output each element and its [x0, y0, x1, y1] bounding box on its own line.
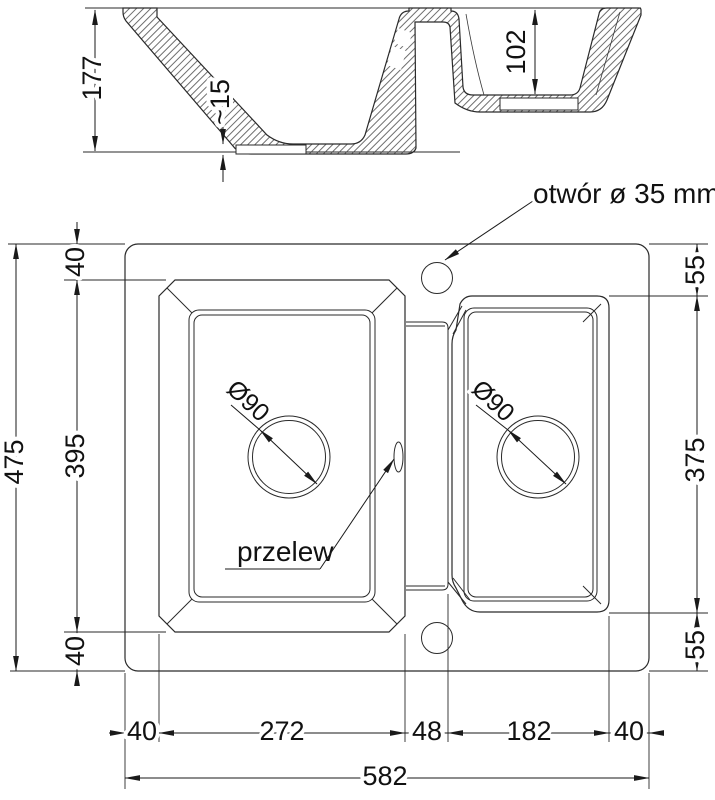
hole-leader-line [445, 201, 533, 260]
sink-technical-drawing: 177 ~15 102 [0, 0, 715, 800]
label-overflow: przelew [237, 536, 334, 567]
extension-lines [8, 244, 708, 789]
dim-bowl2-depth: 102 [501, 29, 531, 74]
section-material [123, 8, 641, 154]
label-hole: otwór ø 35 mm [533, 178, 715, 209]
dim-right-bottom-offset: 55 [680, 630, 710, 660]
overflow-leader-line [320, 459, 394, 569]
dim-bottom-m2: 272 [259, 716, 304, 746]
bowl-right-outer-rim [452, 296, 609, 612]
bowl-right-miter-tr [583, 304, 601, 322]
dia-right-line [508, 430, 566, 484]
dim-bottom-m3: 48 [412, 716, 442, 746]
technical-drawing-page: 177 ~15 102 [0, 0, 715, 800]
bowl-left-miter-tr [372, 288, 397, 313]
tap-hole-top [422, 263, 453, 294]
dim-total-height: 475 [0, 439, 29, 484]
bowl-left [159, 280, 405, 632]
dim-right-top-offset: 55 [680, 255, 710, 285]
dim-bottom-m1: 40 [127, 716, 157, 746]
plan-view: 475 40 395 40 55 375 55 40 272 48 182 40… [0, 178, 715, 791]
bowl-left-miter-tl [167, 288, 192, 313]
dim-bottom-m5: 40 [614, 716, 644, 746]
label-drain-right: Ø90 [466, 375, 520, 428]
bowl-right-inner-rim-1 [464, 308, 597, 601]
dia-left-line [260, 430, 317, 484]
dim-total-width: 582 [362, 761, 407, 791]
background-edge-left [466, 14, 484, 95]
drain-recess-bowl1 [236, 145, 306, 154]
divider-channel-outer [406, 322, 448, 590]
label-drain-left: Ø90 [221, 375, 275, 428]
dim-bottom-thickness: ~15 [205, 79, 235, 125]
overflow-hole [394, 442, 403, 472]
dim-bowl2-height: 375 [680, 437, 710, 482]
bowl-right [406, 296, 609, 612]
dim-left-bottom-offset: 40 [60, 636, 90, 666]
dim-section-height: 177 [77, 55, 107, 100]
dim-left-top-offset: 40 [60, 247, 90, 277]
dim-bottom-m4: 182 [506, 716, 551, 746]
step-bevel-bottom-1 [448, 582, 466, 604]
bowl-left-miter-bl [167, 599, 192, 624]
drain-recess-bowl2 [500, 98, 578, 110]
bowl-left-outer-rim [159, 280, 405, 632]
step-bevel-bottom-2 [453, 578, 470, 600]
bowl-left-miter-br [372, 599, 397, 624]
drain-right-inner [502, 421, 575, 494]
section-view: 177 ~15 102 [77, 8, 641, 182]
step-bevel-top-1 [448, 306, 462, 330]
drain-right-outer [497, 416, 579, 498]
dim-bowl1-height: 395 [60, 433, 90, 478]
